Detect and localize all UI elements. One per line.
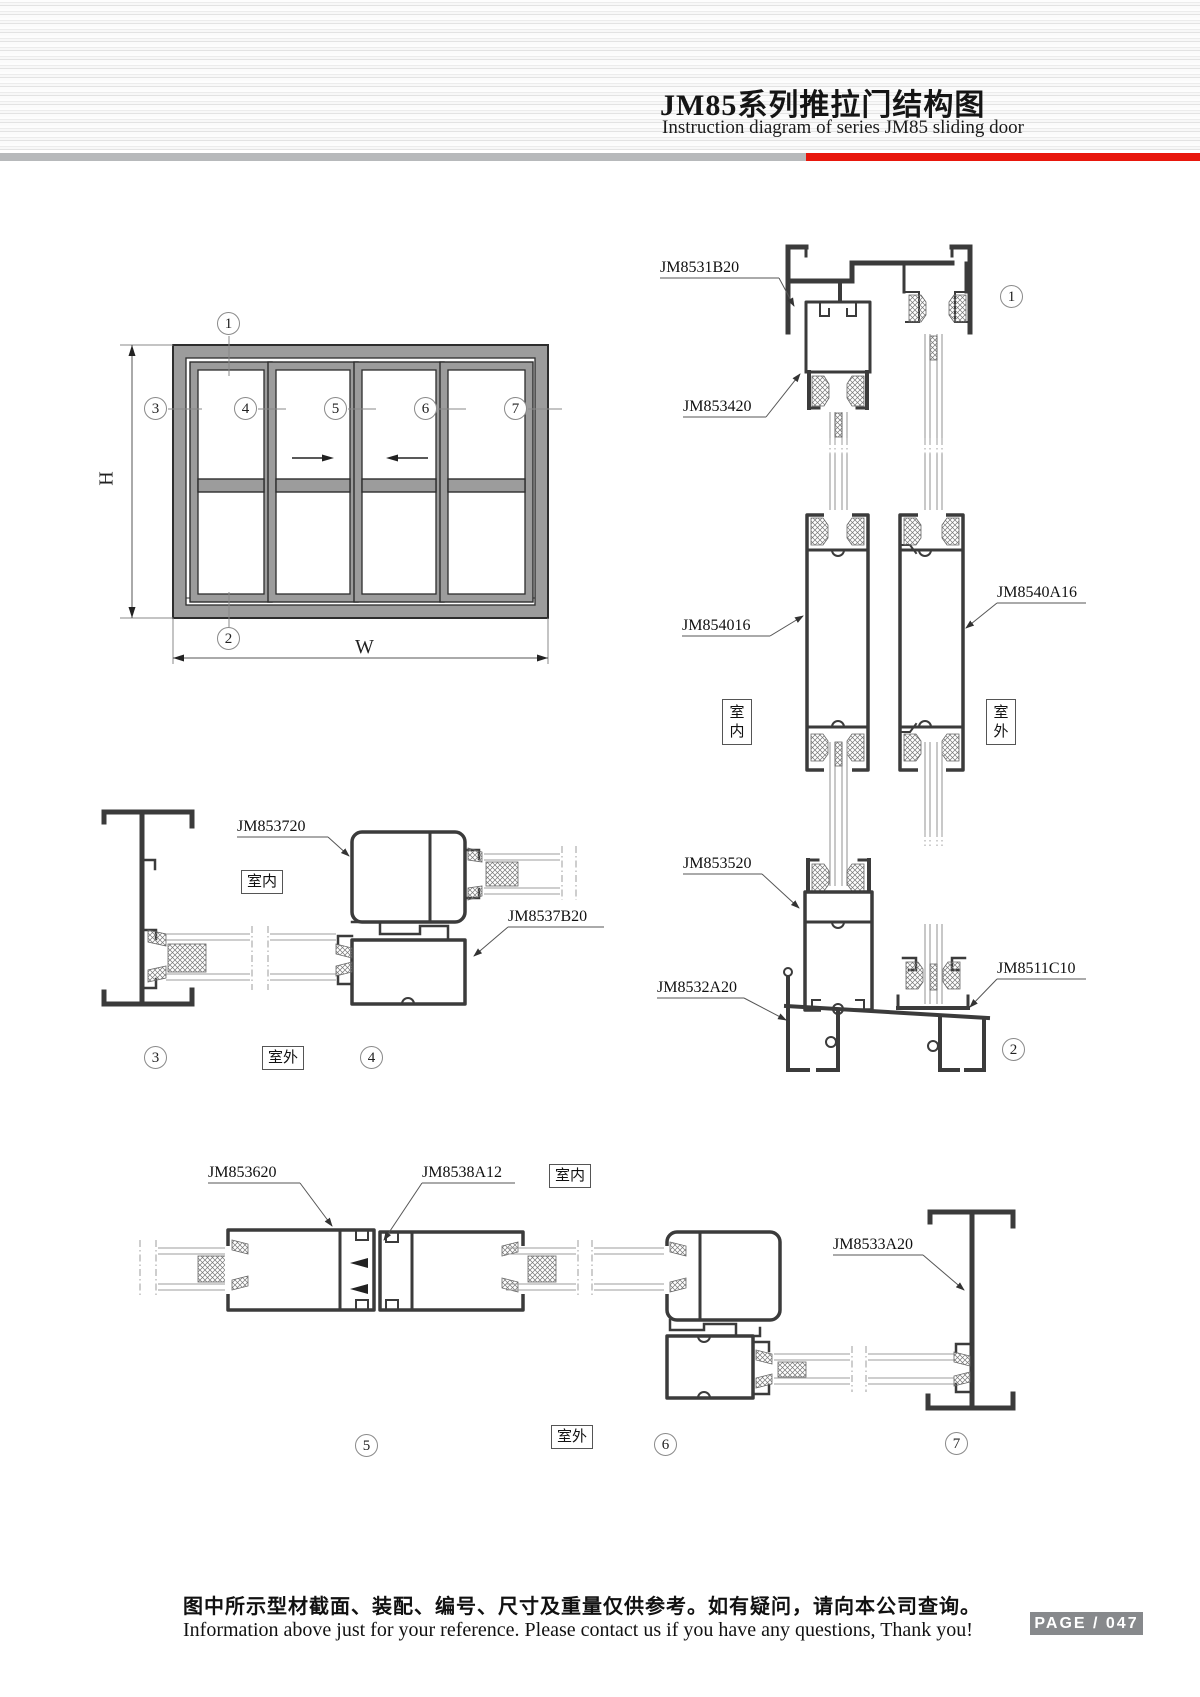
glass-upper-band — [484, 846, 576, 900]
mullion-left-profile — [807, 510, 868, 775]
glass-lower-band — [166, 926, 336, 990]
part-label-jm853720: JM853720 — [237, 818, 305, 836]
section-callout-2: 2 — [1002, 1038, 1025, 1061]
sash-top-rail-profile — [806, 302, 870, 408]
section-callout-4: 4 — [360, 1046, 383, 1069]
elevation-callout-2: 2 — [217, 627, 240, 650]
page-subtitle: Instruction diagram of series JM85 slidi… — [662, 117, 1024, 139]
part-label-jm8531b20: JM8531B20 — [660, 259, 739, 277]
part-label-jm8537b20: JM8537B20 — [508, 908, 587, 926]
mullion-right-profile — [900, 510, 963, 775]
elevation-callout-5: 5 — [324, 397, 347, 420]
interlock-lower-profile — [667, 1320, 772, 1398]
sash-stile-profile — [352, 832, 482, 922]
glass-band-middle — [506, 1240, 680, 1298]
glass-band-right — [774, 1346, 954, 1392]
horizontal-section-bottom-drawing — [90, 1100, 1060, 1470]
part-label-jm8533a20: JM8533A20 — [833, 1236, 913, 1254]
elevation-callout-7: 7 — [504, 397, 527, 420]
part-label-jm853620: JM853620 — [208, 1164, 276, 1182]
elevation-callout-6: 6 — [414, 397, 437, 420]
page: JM85系列推拉门结构图 Instruction diagram of seri… — [0, 0, 1200, 1697]
section-callout-5: 5 — [355, 1434, 378, 1457]
dimension-label-width: W — [355, 636, 374, 659]
part-label-jm853420: JM853420 — [683, 398, 751, 416]
elevation-callout-3: 3 — [144, 397, 167, 420]
part-label-jm8511c10: JM8511C10 — [997, 960, 1076, 978]
jamb-left-profile — [104, 812, 192, 1004]
door-frame — [173, 345, 548, 618]
part-label-jm854016: JM854016 — [682, 617, 750, 635]
zone-label-outdoor-bottom: 室外 — [551, 1425, 593, 1449]
footer-note-chinese: 图中所示型材截面、装配、编号、尺寸及重量仅供参考。如有疑问，请向本公司查询。 — [183, 1590, 981, 1619]
zone-label-outdoor-vertical: 室外 — [986, 699, 1016, 745]
part-label-jm8538a12: JM8538A12 — [422, 1164, 502, 1182]
section-callout-7: 7 — [945, 1432, 968, 1455]
part-label-jm8540a16: JM8540A16 — [997, 584, 1077, 602]
sash-stile-upper-profile — [664, 1232, 780, 1320]
divider-red-segment — [806, 153, 1200, 161]
zone-label-indoor-vertical: 室内 — [722, 699, 752, 745]
zone-label-indoor-bottom: 室内 — [549, 1164, 591, 1188]
part-label-jm853520: JM853520 — [683, 855, 751, 873]
sash-bottom-rail-profile — [805, 860, 872, 1015]
part-label-jm8532a20: JM8532A20 — [657, 979, 737, 997]
vertical-section-drawing — [600, 225, 1100, 1085]
elevation-drawing — [95, 270, 575, 680]
dimension-label-height: H — [96, 471, 119, 485]
section-callout-3: 3 — [144, 1046, 167, 1069]
meeting-stile-right-profile — [380, 1232, 527, 1310]
jamb-right-profile — [928, 1212, 1013, 1408]
header-divider — [0, 153, 1200, 161]
elevation-callout-1: 1 — [217, 312, 240, 335]
meeting-stile-left-profile — [225, 1230, 374, 1310]
zone-label-outdoor-mid: 室外 — [262, 1046, 304, 1070]
zone-label-indoor-mid: 室内 — [241, 870, 283, 894]
footer-note-english: Information above just for your referenc… — [183, 1619, 973, 1642]
section-callout-6: 6 — [654, 1433, 677, 1456]
elevation-callout-4: 4 — [234, 397, 257, 420]
interlock-profile — [336, 922, 465, 1004]
divider-gray-segment — [0, 153, 806, 161]
page-number-badge: PAGE / 047 — [1030, 1612, 1143, 1635]
section-callout-1: 1 — [1000, 285, 1023, 308]
